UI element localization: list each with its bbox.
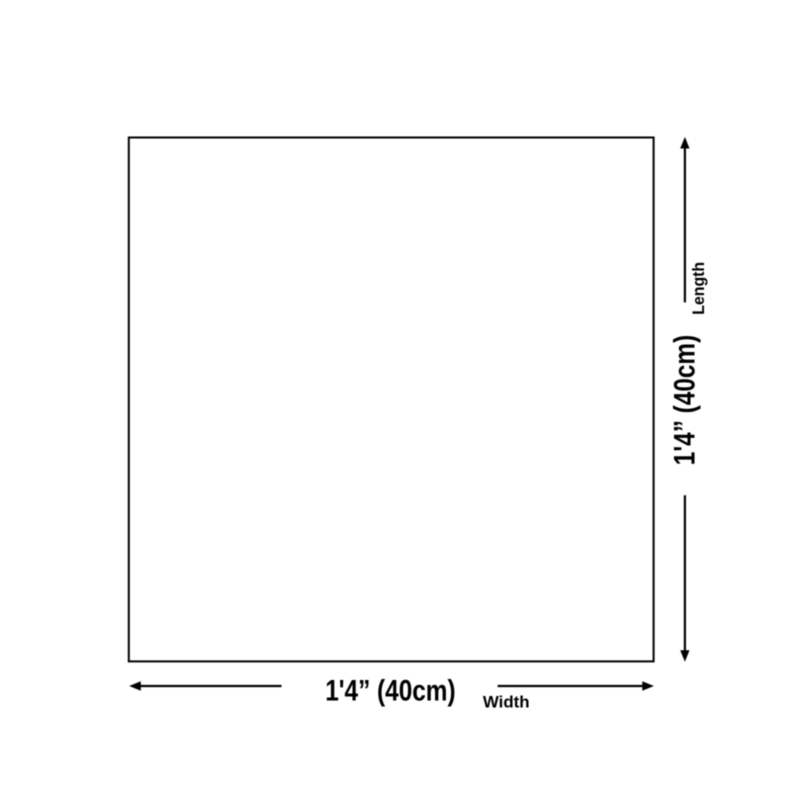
svg-text:Length: Length — [690, 262, 708, 315]
svg-text:1'4” (40cm): 1'4” (40cm) — [669, 335, 702, 465]
svg-text:1'4” (40cm): 1'4” (40cm) — [325, 674, 455, 707]
svg-text:Width: Width — [483, 694, 530, 712]
